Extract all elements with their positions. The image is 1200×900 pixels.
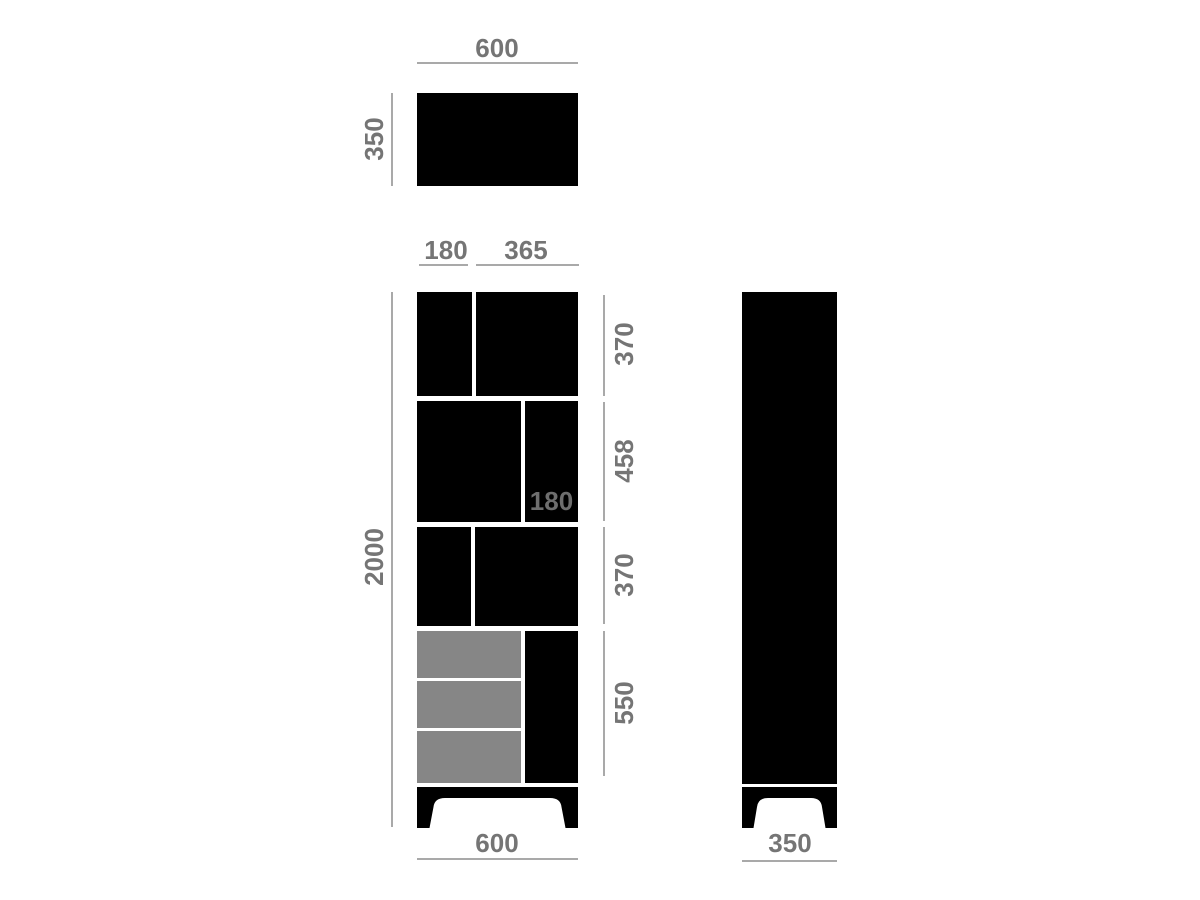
compartment-top-right: [476, 292, 578, 396]
row2-height-dim-line: [603, 402, 605, 521]
front-left-width-dim-label: 180: [424, 237, 467, 263]
drawer-2: [417, 681, 521, 728]
front-base-legs: [417, 787, 578, 828]
front-right-width-dim-line: [476, 264, 579, 266]
drawer-3: [417, 731, 521, 783]
compartment-mid-left: [417, 401, 521, 522]
row3-height-dim-label: 370: [611, 553, 637, 596]
side-base-legs: [742, 787, 837, 828]
row2-height-dim-label: 458: [611, 439, 637, 482]
compartment-bottom-right: [525, 631, 578, 783]
front-height-dim-label: 2000: [361, 528, 387, 586]
side-depth-dim-label: 350: [768, 830, 811, 856]
top-view-panel: [417, 93, 578, 186]
front-left-width-dim-line: [419, 264, 468, 266]
compartment-lower-left: [417, 527, 471, 626]
compartment-top-left: [417, 292, 472, 396]
top-width-dim-label: 600: [475, 35, 518, 61]
top-depth-dim-line: [391, 93, 393, 186]
row4-height-dim-label: 550: [611, 681, 637, 724]
row4-height-dim-line: [603, 631, 605, 776]
side-panel: [742, 292, 837, 784]
side-depth-dim-line: [742, 860, 837, 862]
row1-height-dim-line: [603, 295, 605, 396]
compartment-mid-right: 180: [525, 401, 578, 522]
dimension-drawing: 600 350 180 365 2000 180: [0, 0, 1200, 900]
compartment-lower-right: [475, 527, 578, 626]
front-right-width-dim-label: 365: [504, 237, 547, 263]
front-height-dim-line: [391, 292, 393, 827]
inner-width-label: 180: [530, 488, 573, 514]
top-depth-dim-label: 350: [361, 117, 387, 160]
row1-height-dim-label: 370: [611, 322, 637, 365]
row3-height-dim-line: [603, 527, 605, 624]
top-width-dim-line: [417, 62, 578, 64]
front-base-width-dim-line: [417, 858, 578, 860]
front-base-width-dim-label: 600: [475, 830, 518, 856]
drawer-1: [417, 631, 521, 678]
